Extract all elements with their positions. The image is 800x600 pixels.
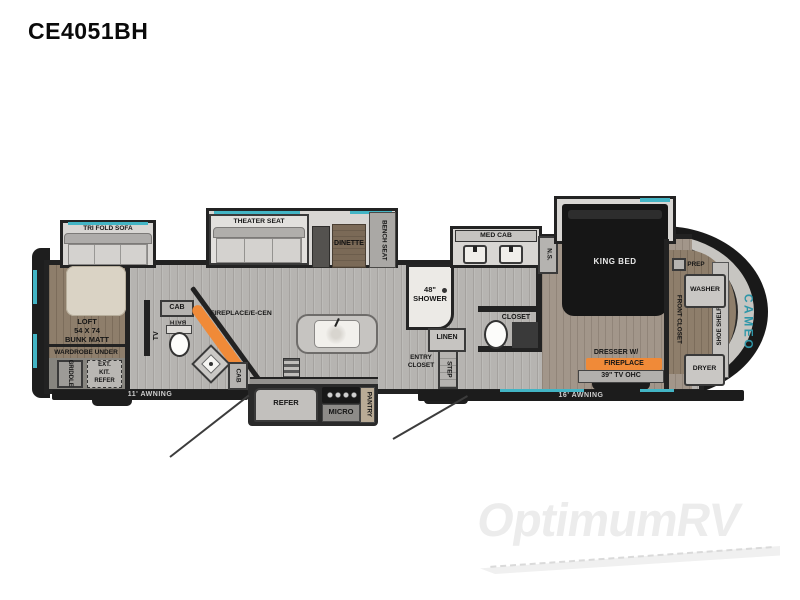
bath-label: BATH xyxy=(164,318,192,324)
loft-label-3: BUNK MATT xyxy=(52,336,122,344)
wardrobe-under-label: WARDROBE UNDER xyxy=(44,349,128,356)
shower-label-2: SHOWER xyxy=(408,295,452,303)
loft-label-2: 54 X 74 xyxy=(52,327,122,335)
toilet-icon xyxy=(169,332,190,357)
step-label: STEP xyxy=(445,353,452,385)
dinette-label: DINETTE xyxy=(324,240,374,248)
bed-pillows xyxy=(568,210,662,219)
ext-kit-label-1: EXT. xyxy=(87,362,122,368)
prep-label: PREP xyxy=(682,262,710,269)
micro-label: MICRO xyxy=(318,408,364,416)
front-closet-label: FRONT CLOSET xyxy=(675,283,682,355)
cab-lower-label: CAB xyxy=(234,364,241,388)
toilet-icon xyxy=(484,320,508,349)
dresser-label-1: DRESSER W/ xyxy=(578,349,654,357)
bunk-mattress xyxy=(66,266,126,316)
theater-sofa-seat xyxy=(216,238,302,263)
rear-window-accent xyxy=(33,270,37,304)
theater-sofa-back xyxy=(213,227,305,238)
wardrobe-divider xyxy=(49,344,125,347)
ext-kit-label-3: REFER xyxy=(87,378,122,384)
tv-label: TV xyxy=(153,325,161,347)
king-bed-label: KING BED xyxy=(580,258,650,267)
toilet-room-wall xyxy=(478,306,542,312)
sofa-seat xyxy=(68,244,148,265)
cab-upper-label: CAB xyxy=(160,304,194,312)
rear-window-accent xyxy=(33,334,37,368)
sofa-back xyxy=(64,233,152,244)
vanity-faucet-icon xyxy=(509,246,513,252)
pantry-label: PANTRY xyxy=(365,383,372,425)
bath-closet xyxy=(512,322,538,348)
tv-ohc-label: 39" TV OHC xyxy=(578,372,664,380)
sink-faucet-icon xyxy=(209,362,213,366)
fireplace-ecen-label: FIREPLACE/E-CEN xyxy=(202,310,280,317)
stove-icon xyxy=(322,387,360,403)
bed-slide-window xyxy=(640,198,670,202)
entry-closet-label-1: ENTRY xyxy=(402,354,440,361)
dealer-watermark: OptimumRV xyxy=(468,488,798,588)
cameo-brand: CAMEO xyxy=(742,290,755,354)
front-closet-wall xyxy=(664,239,669,391)
griddle-label: GRIDDLE xyxy=(67,355,73,391)
half-bath-wall xyxy=(144,300,150,356)
washer-label: WASHER xyxy=(684,286,726,293)
shower-head-icon xyxy=(442,288,447,293)
entry-closet-label-2: CLOSET xyxy=(402,362,440,369)
dryer-label: DRYER xyxy=(684,365,725,372)
awning-left-label: 11' AWNING xyxy=(52,391,248,399)
refer-label: REFER xyxy=(254,399,318,407)
theater-seat-label: THEATER SEAT xyxy=(211,218,307,225)
dresser-label-2: FIREPLACE xyxy=(586,360,662,368)
tri-fold-sofa-label: TRI FOLD SOFA xyxy=(62,225,154,232)
awning-arm-left xyxy=(169,395,249,458)
linen-label: LINEN xyxy=(428,334,466,342)
med-cab-label: MED CAB xyxy=(455,232,537,239)
bench-seat-label: BENCH SEAT xyxy=(380,212,387,268)
watermark-text: OptimumRV xyxy=(474,492,744,547)
ns-label: N.S. xyxy=(545,240,552,268)
ext-kit-label-2: KIT. xyxy=(87,370,122,376)
vanity-faucet-icon xyxy=(473,246,477,252)
loft-label-1: LOFT xyxy=(52,318,122,326)
